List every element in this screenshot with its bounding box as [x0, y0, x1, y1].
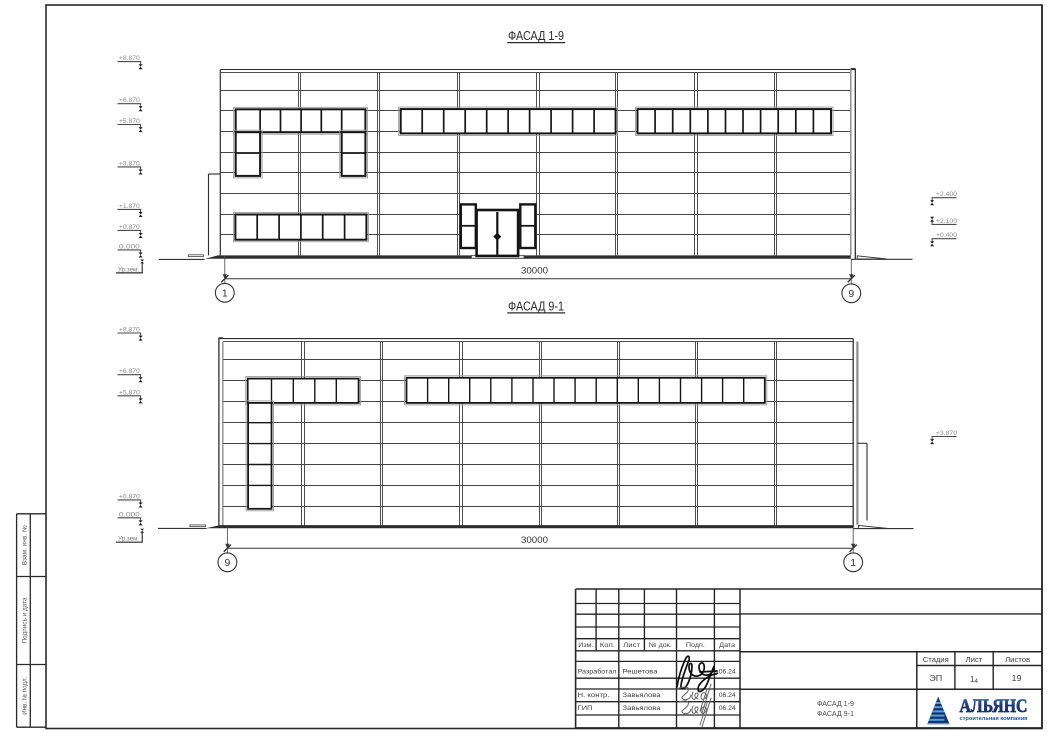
svg-text:Разработал: Разработал [578, 667, 617, 675]
svg-text:строительная компания: строительная компания [960, 716, 1028, 722]
svg-text:ФАСАД 1-9: ФАСАД 1-9 [817, 699, 854, 708]
svg-text:Подпись и дата: Подпись и дата [22, 597, 29, 644]
svg-text:Лист: Лист [623, 642, 640, 649]
svg-text:Дата: Дата [719, 642, 735, 649]
svg-text:АЛЬЯНС: АЛЬЯНС [960, 697, 1028, 717]
svg-text:06.24: 06.24 [719, 668, 736, 675]
svg-text:ФАСАД 9-1: ФАСАД 9-1 [508, 299, 564, 313]
svg-text:Подп.: Подп. [686, 642, 705, 649]
svg-text:Взам. инв. №: Взам. инв. № [22, 525, 29, 565]
svg-text:30000: 30000 [521, 265, 548, 275]
svg-text:ФАСАД 9-1: ФАСАД 9-1 [817, 709, 854, 718]
svg-text:Завьялова: Завьялова [623, 692, 661, 699]
svg-text:ЭП: ЭП [929, 674, 942, 683]
svg-text:Стадия: Стадия [923, 655, 949, 664]
svg-text:30000: 30000 [521, 535, 548, 545]
svg-text:1: 1 [222, 288, 228, 300]
svg-text:9: 9 [224, 557, 230, 569]
svg-text:ГИП: ГИП [578, 705, 593, 712]
svg-text:Изм.: Изм. [578, 642, 593, 649]
svg-text:Н. контр.: Н. контр. [578, 692, 610, 699]
svg-text:Инв. № подл.: Инв. № подл. [22, 677, 29, 715]
svg-text:Завьялова: Завьялова [623, 705, 661, 712]
svg-text:06.24: 06.24 [719, 705, 736, 712]
svg-text:№ док.: № док. [649, 642, 672, 649]
svg-text:06.24: 06.24 [719, 692, 736, 699]
svg-text:19: 19 [1012, 674, 1022, 683]
svg-text:Решетова: Решетова [623, 668, 658, 675]
svg-text:Кол.: Кол. [600, 642, 615, 649]
svg-text:ФАСАД 1-9: ФАСАД 1-9 [508, 29, 564, 43]
svg-text:Листов: Листов [1005, 655, 1030, 664]
svg-text:9: 9 [848, 288, 854, 300]
svg-text:Лист: Лист [966, 655, 984, 664]
svg-text:1: 1 [850, 557, 856, 569]
